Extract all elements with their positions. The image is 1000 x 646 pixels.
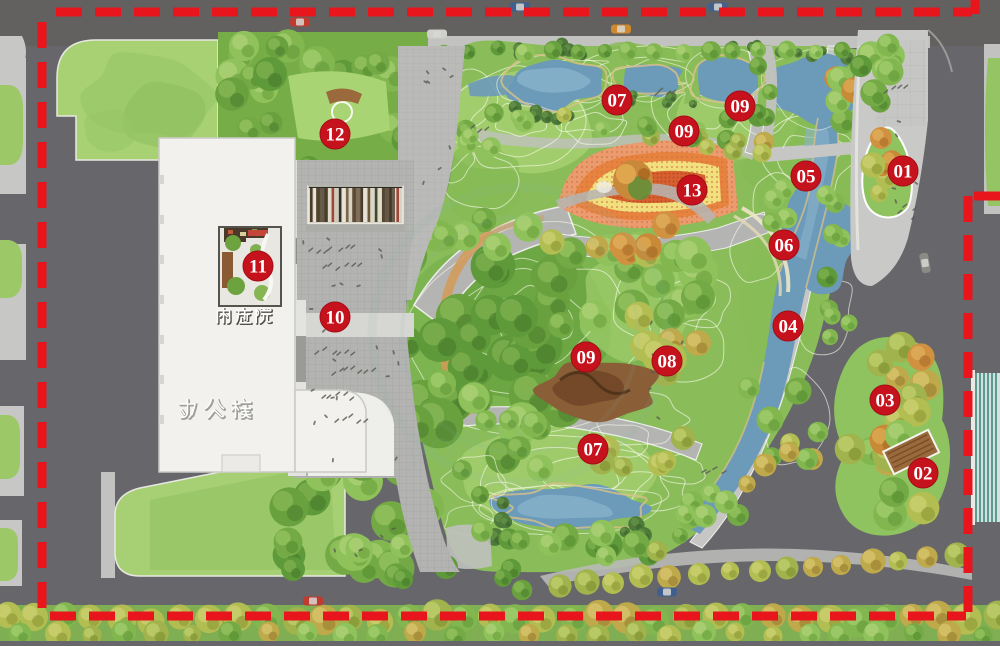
svg-text:05: 05 [797,167,816,188]
svg-text:11: 11 [249,257,267,278]
svg-text:01: 01 [894,162,913,183]
svg-text:12: 12 [326,125,345,146]
svg-text:10: 10 [326,308,345,329]
svg-text:09: 09 [675,122,694,143]
svg-text:04: 04 [779,317,799,338]
svg-text:03: 03 [876,391,895,412]
svg-text:06: 06 [775,236,794,257]
svg-text:09: 09 [577,348,596,369]
svg-text:13: 13 [683,181,702,202]
svg-text:08: 08 [658,352,677,373]
svg-text:07: 07 [584,440,604,461]
svg-text:02: 02 [914,464,933,485]
svg-text:07: 07 [608,91,628,112]
svg-text:09: 09 [731,97,750,118]
